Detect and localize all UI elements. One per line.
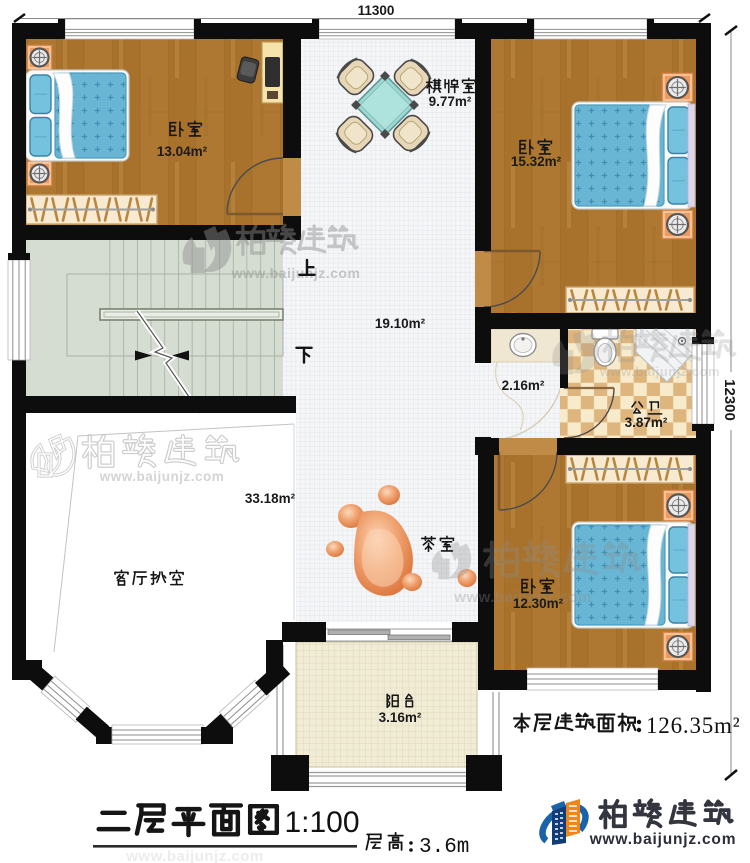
svg-text:12.30m²: 12.30m²: [513, 596, 564, 611]
svg-text:www.baijunjz.com: www.baijunjz.com: [125, 848, 263, 863]
svg-text:3.6m: 3.6m: [419, 836, 469, 859]
svg-text:1:100: 1:100: [284, 806, 359, 839]
svg-text:33.18m²: 33.18m²: [245, 491, 296, 506]
svg-text:2.16m²: 2.16m²: [502, 378, 545, 393]
svg-text:www.baijunjz.com: www.baijunjz.com: [231, 265, 361, 281]
svg-text:19.10m²: 19.10m²: [375, 316, 426, 331]
svg-text:www.baijunjz.com: www.baijunjz.com: [99, 469, 225, 484]
svg-text:www.baijunjz.com: www.baijunjz.com: [589, 831, 737, 848]
svg-text:13.04m²: 13.04m²: [157, 144, 208, 159]
svg-text:3.16m²: 3.16m²: [379, 710, 422, 725]
svg-text:126.35m²: 126.35m²: [646, 713, 740, 738]
svg-text:11300: 11300: [358, 3, 395, 18]
svg-text:3.87m²: 3.87m²: [625, 415, 668, 430]
svg-text:15.32m²: 15.32m²: [511, 154, 562, 169]
svg-text:9.77m²: 9.77m²: [429, 94, 472, 109]
svg-text:www.baijunjz.com: www.baijunjz.com: [599, 364, 720, 379]
svg-text:12300: 12300: [721, 379, 738, 421]
